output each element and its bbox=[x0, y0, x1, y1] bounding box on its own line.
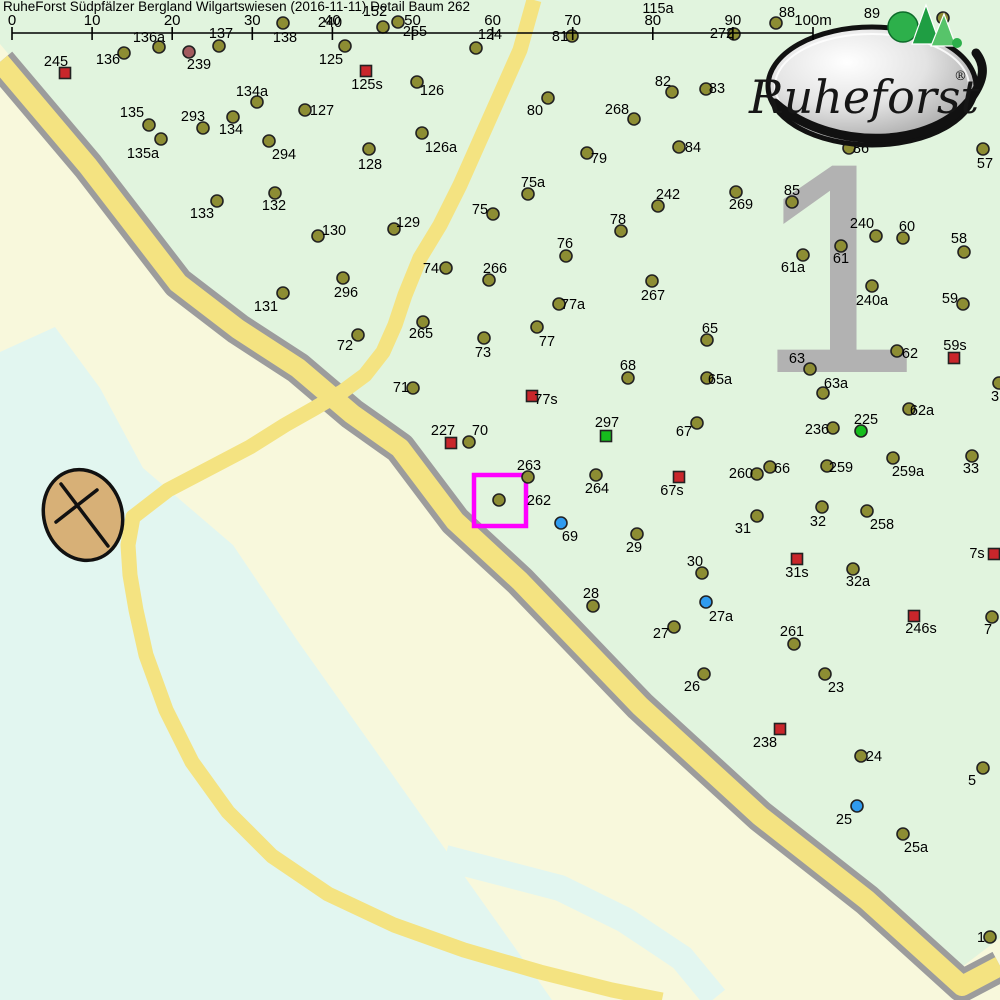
tree-dot-marker[interactable] bbox=[673, 141, 685, 153]
tree-label: 268 bbox=[605, 102, 629, 118]
tree-label: 85 bbox=[784, 183, 800, 199]
tree-label: 259 bbox=[829, 460, 853, 476]
tree-dot-marker[interactable] bbox=[819, 668, 831, 680]
tree-label: 236 bbox=[805, 422, 829, 438]
tree-label: 293 bbox=[181, 109, 205, 125]
blue-dot-marker[interactable] bbox=[700, 596, 712, 608]
tree-dot-marker[interactable] bbox=[590, 469, 602, 481]
scale-tick-label: 20 bbox=[164, 12, 181, 29]
tree-dot-marker[interactable] bbox=[487, 208, 499, 220]
tree-260[interactable]: 260 bbox=[729, 466, 763, 482]
tree-dot-marker[interactable] bbox=[363, 143, 375, 155]
red-square-marker[interactable] bbox=[775, 724, 786, 735]
logo-brand-text: Ruheforst bbox=[748, 70, 979, 124]
tree-label: 62a bbox=[910, 403, 935, 419]
tree-label: 71 bbox=[393, 380, 409, 396]
tree-dot-marker[interactable] bbox=[155, 133, 167, 145]
tree-label: 58 bbox=[951, 231, 967, 247]
tree-label: 60 bbox=[899, 219, 915, 235]
tree-label: 133 bbox=[190, 206, 214, 222]
tree-label: 297 bbox=[595, 415, 619, 431]
map-viewport: 1 245136136a2391371381252401522551248111… bbox=[0, 0, 1000, 1000]
tree-label: 135a bbox=[127, 146, 160, 162]
tree-label: 124 bbox=[478, 27, 502, 43]
tree-label: 258 bbox=[870, 517, 894, 533]
tree-label: 260 bbox=[729, 466, 753, 482]
tree-label: 126 bbox=[420, 83, 444, 99]
red-square-marker[interactable] bbox=[792, 554, 803, 565]
tree-dot-marker[interactable] bbox=[352, 329, 364, 341]
tree-label: 132 bbox=[262, 198, 286, 214]
tree-label: 75 bbox=[472, 202, 488, 218]
tree-dot-marker[interactable] bbox=[887, 452, 899, 464]
scale-tick-label: 0 bbox=[8, 12, 16, 29]
tree-label: 75a bbox=[521, 175, 546, 191]
tree-label: 67 bbox=[676, 424, 692, 440]
tree-label: 127 bbox=[310, 103, 334, 119]
tree-label: 76 bbox=[557, 236, 573, 252]
tree-label: 32 bbox=[810, 514, 826, 530]
tree-dot-marker[interactable] bbox=[977, 143, 989, 155]
tree-label: 130 bbox=[322, 223, 346, 239]
green-square-marker[interactable] bbox=[601, 431, 612, 442]
forest-cemetery-map: 1 245136136a2391371381252401522551248111… bbox=[0, 0, 1000, 1000]
tree-label: 66 bbox=[774, 461, 790, 477]
tree-label: 77a bbox=[561, 297, 586, 313]
tree-77a[interactable]: 77a bbox=[553, 297, 586, 313]
tree-label: 242 bbox=[656, 187, 680, 203]
tree-label: 31s bbox=[785, 565, 808, 581]
tree-label: 137 bbox=[209, 26, 233, 42]
tree-label: 78 bbox=[610, 212, 626, 228]
tree-label: 27 bbox=[653, 626, 669, 642]
red-square-marker[interactable] bbox=[949, 353, 960, 364]
tree-label: 225 bbox=[854, 412, 878, 428]
tree-label: 262 bbox=[527, 493, 551, 509]
tree-label: 70 bbox=[472, 423, 488, 439]
tree-dot-marker[interactable] bbox=[668, 621, 680, 633]
tree-label: 264 bbox=[585, 481, 609, 497]
tree-label: 227 bbox=[431, 423, 455, 439]
tree-dot-marker[interactable] bbox=[804, 363, 816, 375]
tree-dot-marker[interactable] bbox=[646, 275, 658, 287]
tree-label: 77s bbox=[534, 392, 557, 408]
tree-label: 80 bbox=[527, 103, 543, 119]
tree-dot-marker[interactable] bbox=[339, 40, 351, 52]
tree-label: 69 bbox=[562, 529, 578, 545]
tree-label: 73 bbox=[475, 345, 491, 361]
tree-label: 128 bbox=[358, 157, 382, 173]
tree-dot-marker[interactable] bbox=[263, 135, 275, 147]
tree-dot-marker[interactable] bbox=[440, 262, 452, 274]
tree-85[interactable]: 85 bbox=[784, 183, 800, 208]
tree-label: 131 bbox=[254, 299, 278, 315]
tree-label: 296 bbox=[334, 285, 358, 301]
red-square-marker[interactable] bbox=[674, 472, 685, 483]
tree-label: 269 bbox=[729, 197, 753, 213]
tree-label: 82 bbox=[655, 74, 671, 90]
tree-71[interactable]: 71 bbox=[393, 380, 419, 396]
tree-dot-marker[interactable] bbox=[416, 127, 428, 139]
tree-dot-marker[interactable] bbox=[542, 92, 554, 104]
tree-label: 32a bbox=[846, 574, 871, 590]
map-title: RuheForst Südpfälzer Bergland Wilgartswi… bbox=[3, 0, 470, 14]
scale-tick-label: 80 bbox=[644, 12, 661, 29]
tree-83[interactable]: 83 bbox=[700, 81, 725, 97]
tree-label: 134 bbox=[219, 122, 243, 138]
tree-61[interactable]: 61 bbox=[833, 240, 849, 267]
tree-label: 5 bbox=[968, 773, 976, 789]
tree-68[interactable]: 68 bbox=[620, 358, 636, 384]
tree-dot-marker[interactable] bbox=[478, 332, 490, 344]
tree-label: 134a bbox=[236, 84, 269, 100]
tree-label: 59s bbox=[943, 338, 966, 354]
logo-tree-dot bbox=[952, 38, 962, 48]
tree-label: 240a bbox=[856, 293, 889, 309]
tree-label: 265 bbox=[409, 326, 433, 342]
tree-dot-marker[interactable] bbox=[143, 119, 155, 131]
tree-label: 68 bbox=[620, 358, 636, 374]
tree-label: 126a bbox=[425, 140, 458, 156]
tree-dot-marker[interactable] bbox=[984, 931, 996, 943]
tree-label: 33 bbox=[963, 461, 979, 477]
tree-label: 26 bbox=[684, 679, 700, 695]
scale-tick-label: 30 bbox=[244, 12, 261, 29]
tree-label: 88 bbox=[779, 5, 795, 21]
logo-registered-mark: ® bbox=[954, 69, 967, 84]
tree-label: 129 bbox=[396, 215, 420, 231]
tree-label: 245 bbox=[44, 54, 68, 70]
tree-label: 89 bbox=[864, 6, 880, 22]
tree-label: 267 bbox=[641, 288, 665, 304]
red-square-marker[interactable] bbox=[989, 549, 1000, 560]
tree-label: 28 bbox=[583, 586, 599, 602]
red-square-marker[interactable] bbox=[446, 438, 457, 449]
tree-dot-marker[interactable] bbox=[277, 17, 289, 29]
blue-dot-marker[interactable] bbox=[851, 800, 863, 812]
tree-label: 59 bbox=[942, 291, 958, 307]
tree-label: 239 bbox=[187, 57, 211, 73]
tree-dot-marker[interactable] bbox=[691, 417, 703, 429]
tree-label: 263 bbox=[517, 458, 541, 474]
scale-tick-label: 90 bbox=[725, 12, 742, 29]
tree-7s[interactable]: 7s bbox=[969, 546, 999, 562]
tree-label: 3 bbox=[991, 389, 999, 405]
tree-dot-marker[interactable] bbox=[277, 287, 289, 299]
tree-label: 61a bbox=[781, 260, 806, 276]
red-square-marker[interactable] bbox=[361, 66, 372, 77]
tree-label: 246s bbox=[905, 621, 936, 637]
tree-label: 77 bbox=[539, 334, 555, 350]
tree-dot-marker[interactable] bbox=[977, 762, 989, 774]
tree-dot-marker[interactable] bbox=[866, 280, 878, 292]
tree-label: 7 bbox=[984, 622, 992, 638]
tree-label: 63a bbox=[824, 376, 849, 392]
tree-label: 61 bbox=[833, 251, 849, 267]
tree-label: 25 bbox=[836, 812, 852, 828]
tree-label: 238 bbox=[753, 735, 777, 751]
tree-dot-marker[interactable] bbox=[470, 42, 482, 54]
scale-tick-label: 100m bbox=[794, 12, 832, 29]
tree-label: 74 bbox=[423, 261, 439, 277]
logo-tree-round bbox=[888, 12, 918, 42]
scale-tick-label: 50 bbox=[404, 12, 421, 29]
scale-tick-label: 10 bbox=[84, 12, 101, 29]
tree-label: 1 bbox=[977, 930, 985, 946]
tree-label: 240 bbox=[850, 216, 874, 232]
tree-label: 84 bbox=[685, 140, 701, 156]
tree-label: 65a bbox=[708, 372, 733, 388]
tree-label: 27a bbox=[709, 609, 734, 625]
tree-dot-marker[interactable] bbox=[493, 494, 505, 506]
tree-label: 81 bbox=[552, 29, 568, 45]
tree-label: 65 bbox=[702, 321, 718, 337]
tree-label: 294 bbox=[272, 147, 296, 163]
tree-127[interactable]: 127 bbox=[299, 103, 334, 119]
tree-label: 136 bbox=[96, 52, 120, 68]
tree-label: 125 bbox=[319, 52, 343, 68]
tree-dot-marker[interactable] bbox=[751, 510, 763, 522]
tree-label: 261 bbox=[780, 624, 804, 640]
tree-label: 67s bbox=[660, 483, 683, 499]
tree-label: 63 bbox=[789, 351, 805, 367]
tree-89[interactable]: 89 bbox=[864, 6, 880, 22]
tree-label: 23 bbox=[828, 680, 844, 696]
tree-dot-marker[interactable] bbox=[377, 21, 389, 33]
tree-label: 259a bbox=[892, 464, 925, 480]
tree-label: 62 bbox=[902, 346, 918, 362]
tree-label: 135 bbox=[120, 105, 144, 121]
blue-dot-marker[interactable] bbox=[555, 517, 567, 529]
tree-dot-marker[interactable] bbox=[897, 828, 909, 840]
tree-dot-marker[interactable] bbox=[531, 321, 543, 333]
tree-dot-marker[interactable] bbox=[816, 501, 828, 513]
tree-dot-marker[interactable] bbox=[861, 505, 873, 517]
tree-label: 83 bbox=[709, 81, 725, 97]
tree-label: 31 bbox=[735, 521, 751, 537]
tree-dot-marker[interactable] bbox=[958, 246, 970, 258]
tree-dot-marker[interactable] bbox=[957, 298, 969, 310]
scale-tick-label: 60 bbox=[484, 12, 501, 29]
tree-dot-marker[interactable] bbox=[631, 528, 643, 540]
tree-label: 72 bbox=[337, 338, 353, 354]
tree-label: 7s bbox=[969, 546, 984, 562]
tree-label: 29 bbox=[626, 540, 642, 556]
tree-dot-marker[interactable] bbox=[628, 113, 640, 125]
tree-label: 57 bbox=[977, 156, 993, 172]
tree-label: 79 bbox=[591, 151, 607, 167]
scale-tick-label: 40 bbox=[324, 12, 341, 29]
tree-label: 266 bbox=[483, 261, 507, 277]
tree-dot-marker[interactable] bbox=[993, 377, 1000, 389]
tree-label: 24 bbox=[866, 749, 882, 765]
tree-label: 25a bbox=[904, 840, 929, 856]
tree-dot-marker[interactable] bbox=[337, 272, 349, 284]
red-square-marker[interactable] bbox=[909, 611, 920, 622]
scale-tick-label: 70 bbox=[564, 12, 581, 29]
tree-label: 125s bbox=[351, 77, 382, 93]
tree-label: 30 bbox=[687, 554, 703, 570]
